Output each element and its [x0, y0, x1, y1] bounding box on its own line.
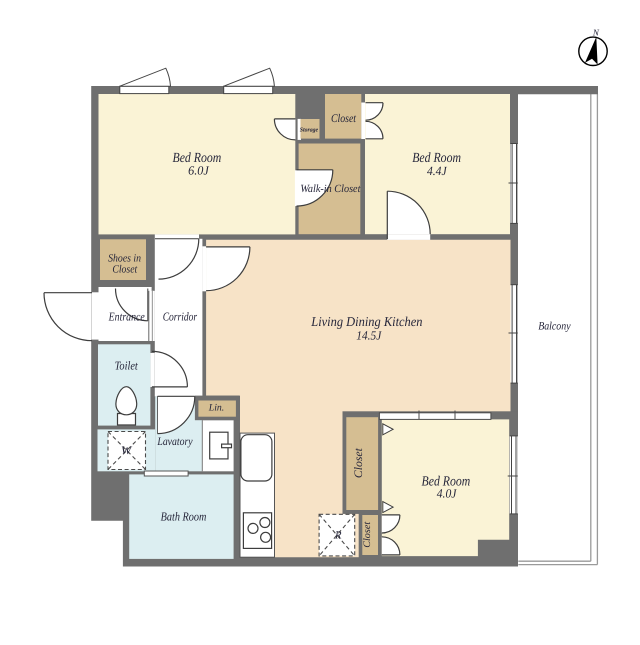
svg-text:Walk-in Closet: Walk-in Closet	[300, 183, 361, 195]
svg-text:Closet: Closet	[331, 112, 357, 125]
svg-text:R: R	[334, 530, 342, 542]
svg-text:Living Dining Kitchen: Living Dining Kitchen	[310, 314, 422, 329]
svg-text:Closet: Closet	[112, 263, 138, 275]
svg-text:Entrance: Entrance	[108, 310, 145, 324]
svg-text:4.4J: 4.4J	[427, 164, 448, 178]
svg-text:Lavatory: Lavatory	[157, 436, 194, 448]
svg-text:W: W	[121, 445, 133, 457]
svg-text:N: N	[592, 27, 600, 37]
svg-text:Bath Room: Bath Room	[161, 510, 207, 524]
svg-text:4.0J: 4.0J	[437, 487, 458, 501]
svg-text:14.5J: 14.5J	[356, 329, 382, 343]
svg-text:Closet: Closet	[362, 522, 373, 548]
svg-text:Balcony: Balcony	[538, 320, 571, 332]
svg-text:Lin.: Lin.	[208, 403, 224, 414]
svg-text:Corridor: Corridor	[163, 310, 198, 324]
svg-text:Closet: Closet	[353, 447, 365, 478]
svg-text:Toilet: Toilet	[115, 359, 139, 373]
svg-text:6.0J: 6.0J	[188, 164, 210, 178]
svg-text:Storage: Storage	[300, 127, 319, 134]
